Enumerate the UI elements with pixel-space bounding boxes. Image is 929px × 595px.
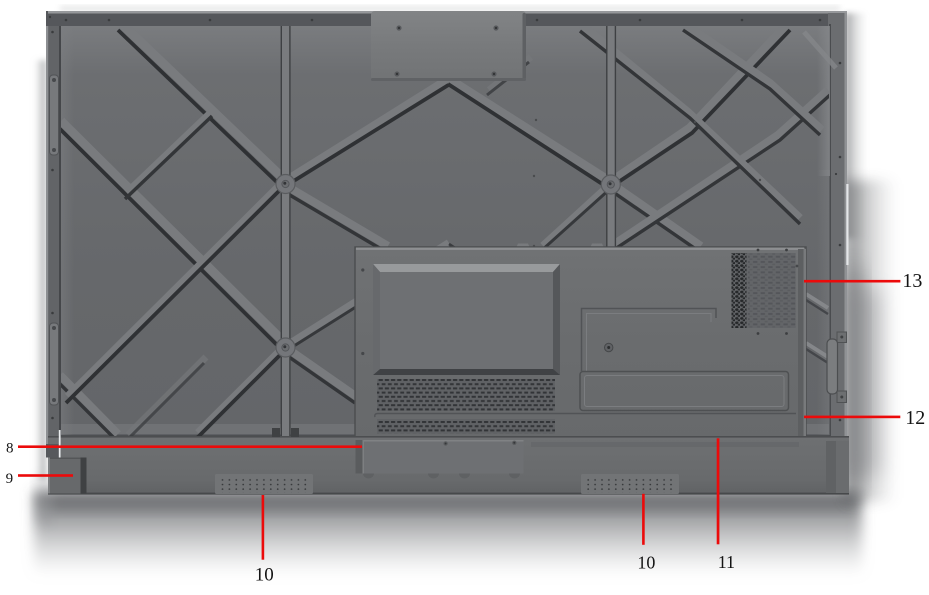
svg-text:12: 12 (905, 407, 925, 429)
svg-text:11: 11 (718, 552, 735, 572)
svg-text:10: 10 (255, 564, 274, 585)
svg-text:8: 8 (6, 440, 14, 456)
svg-text:10: 10 (637, 553, 655, 573)
svg-text:13: 13 (902, 270, 922, 292)
svg-text:9: 9 (6, 471, 14, 487)
